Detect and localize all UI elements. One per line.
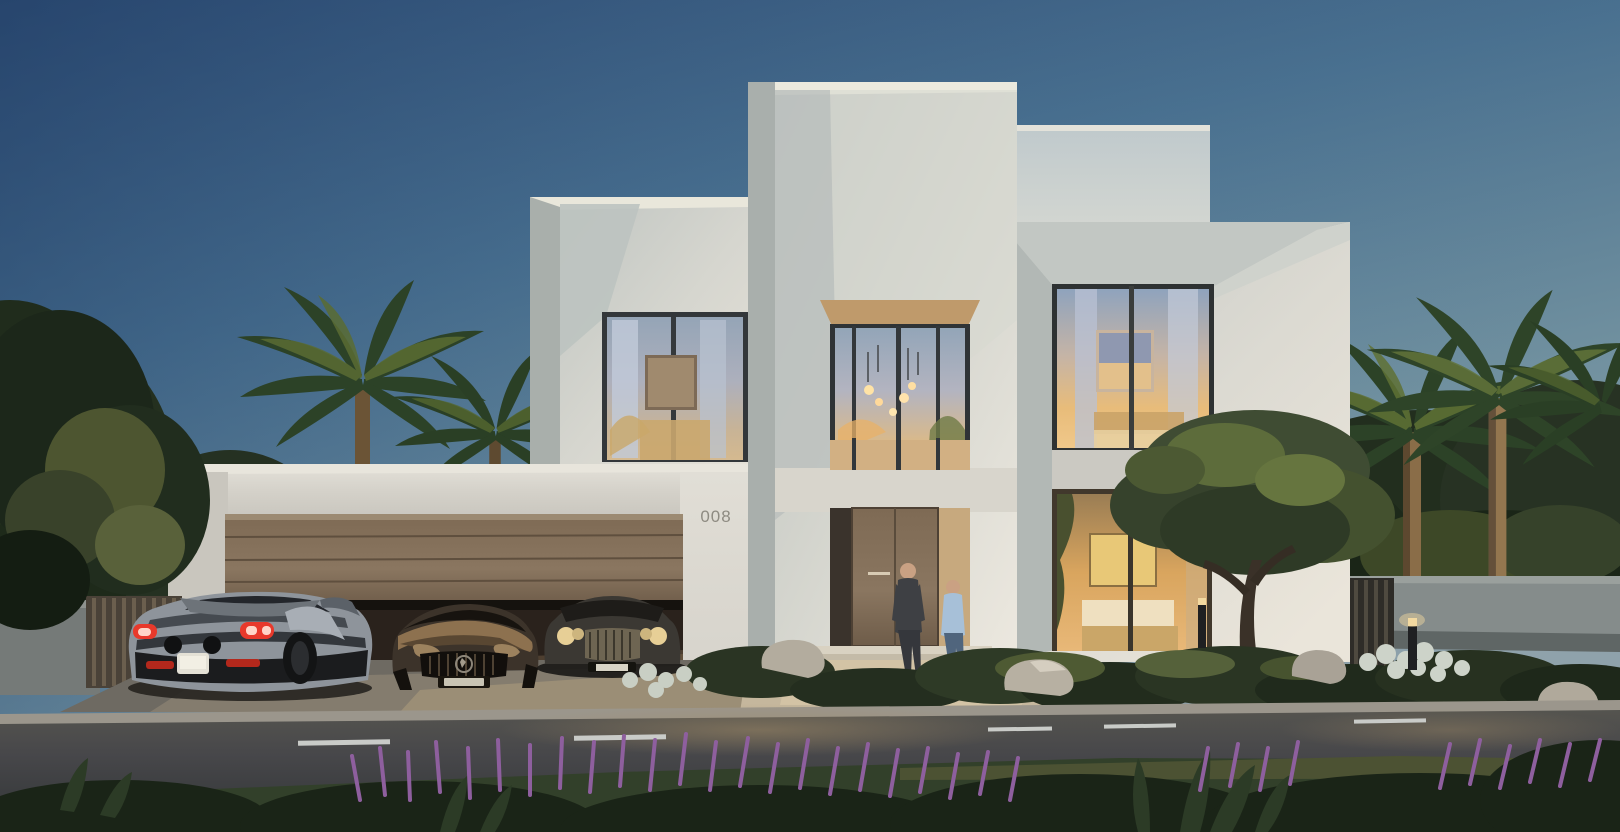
svg-text:008: 008 — [700, 507, 731, 526]
